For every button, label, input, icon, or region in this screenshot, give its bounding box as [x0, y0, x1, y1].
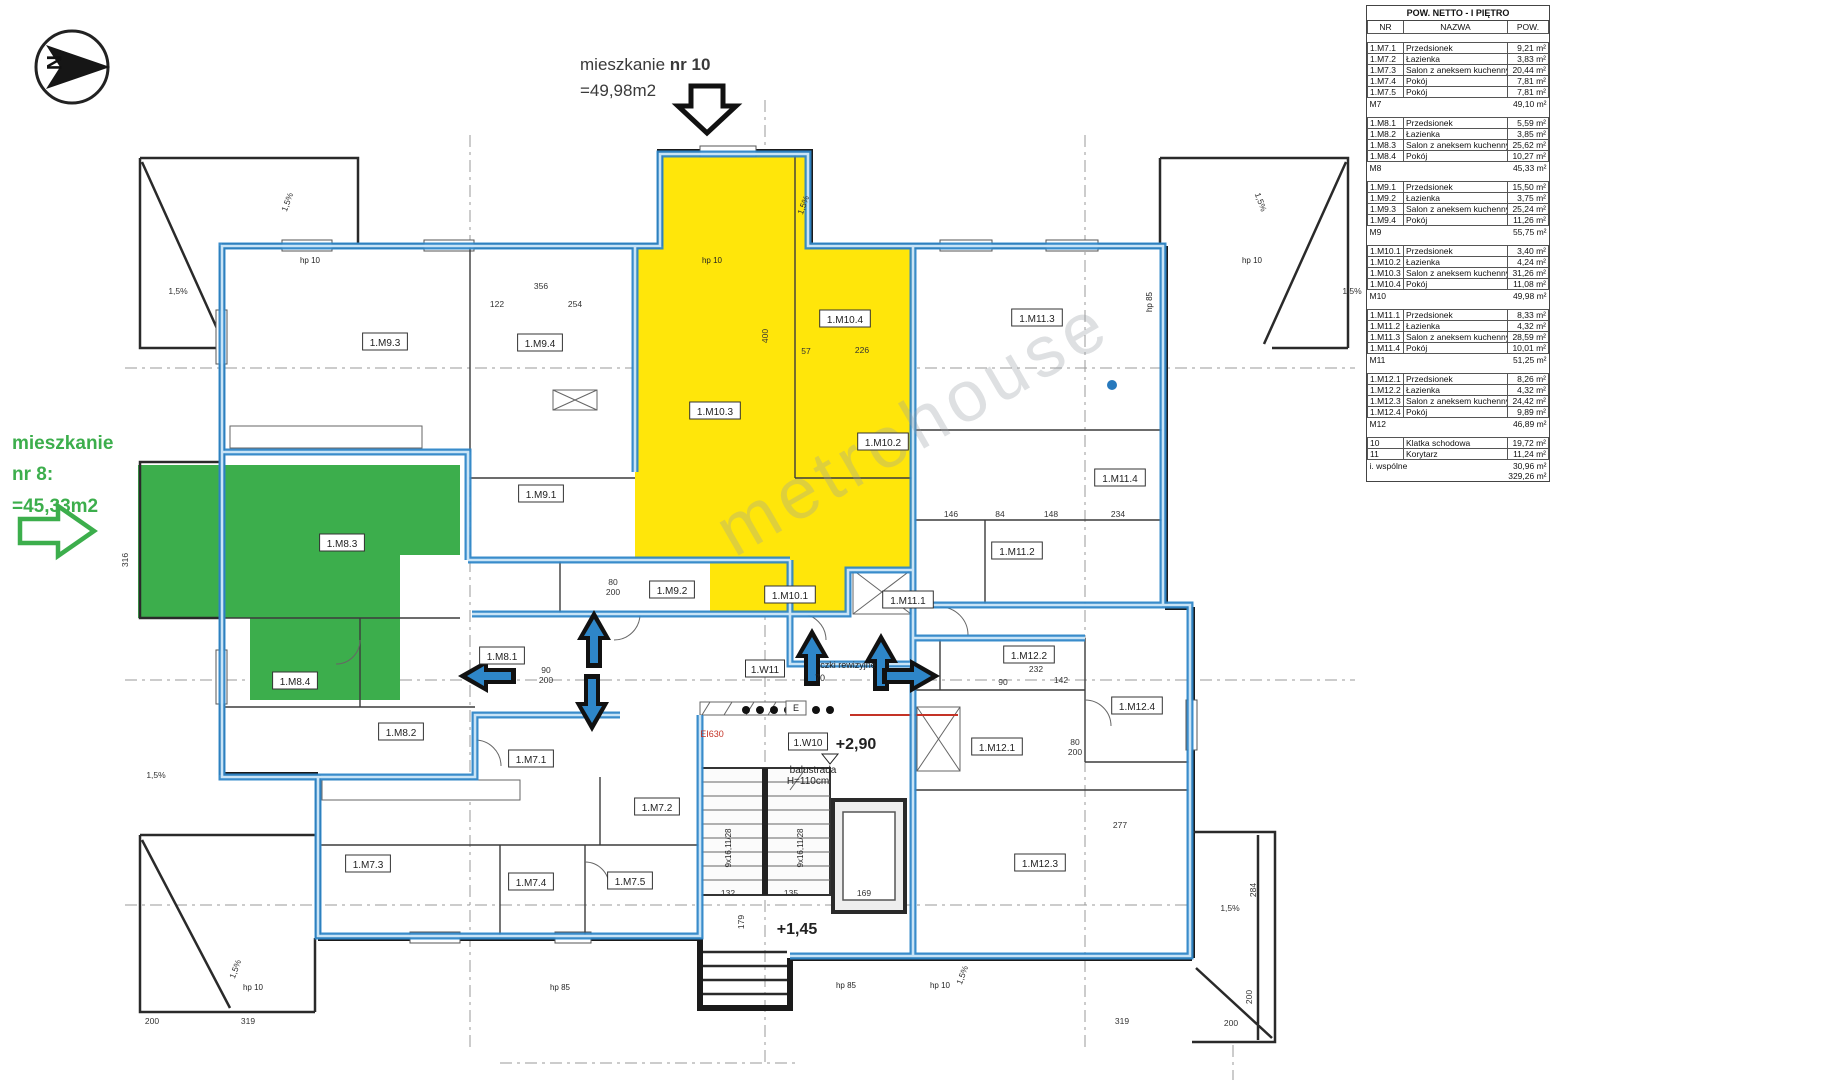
- table-row: 1.M7.5Pokój7,81 m²: [1368, 87, 1549, 98]
- dimension-label: 169: [857, 888, 871, 898]
- apartment-10-name: mieszkanie: [580, 55, 670, 74]
- room-label: 1.M8.3: [320, 534, 365, 551]
- table-row: 1.M10.1Przedsionek3,40 m²: [1368, 246, 1549, 257]
- table-row: M955,75 m²: [1368, 226, 1549, 238]
- table-row: [1368, 237, 1549, 246]
- svg-text:1.M11.3: 1.M11.3: [1019, 314, 1055, 325]
- dimension-label: 400: [760, 329, 770, 343]
- room-label: 1.M7.3: [346, 855, 391, 872]
- room-label: 1.M9.3: [363, 333, 408, 350]
- table-row: 1.M9.4Pokój11,26 m²: [1368, 215, 1549, 226]
- room-label: 1.M10.2: [858, 433, 909, 450]
- room-label: 1.M10.1: [765, 586, 816, 603]
- svg-text:1.M8.4: 1.M8.4: [280, 677, 311, 688]
- dimension-label: 319: [241, 1016, 255, 1026]
- svg-text:N: N: [42, 55, 65, 70]
- plan-note: EI630: [700, 729, 724, 739]
- dimension-label: 135: [784, 888, 798, 898]
- dimension-label: 146: [944, 509, 958, 519]
- area-table: POW. NETTO - I PIĘTRONRNAZWAPOW.1.M7.1Pr…: [1366, 5, 1550, 482]
- dimension-label: 122: [490, 299, 504, 309]
- room-label: 1.M9.4: [518, 334, 563, 351]
- dimension-label: 234: [1111, 509, 1125, 519]
- dimension-label: 1,5%: [954, 964, 970, 986]
- svg-text:1.M11.1: 1.M11.1: [890, 596, 926, 607]
- apartment-10-annotation: mieszkanie nr 10 =49,98m2: [580, 52, 710, 103]
- room-label: 1.M12.4: [1112, 697, 1163, 714]
- room-label: 1.M9.2: [650, 581, 695, 598]
- table-row: 1.M12.1Przedsionek8,26 m²: [1368, 374, 1549, 385]
- plan-note: 70: [815, 673, 825, 683]
- plan-note: H=110cm: [787, 776, 829, 787]
- dimension-label: 254: [568, 299, 582, 309]
- svg-text:1.M10.2: 1.M10.2: [865, 438, 902, 449]
- dimension-label: 90: [998, 677, 1008, 687]
- svg-text:1.M12.3: 1.M12.3: [1022, 859, 1059, 870]
- room-label: 1.W11: [746, 660, 785, 677]
- floor-plan-page: metrohouse N 1.M9.31.M9.41.M9.11.M9.21.M…: [0, 0, 1828, 1080]
- dimension-label: 200: [1244, 990, 1254, 1004]
- room-label: 1.M8.1: [480, 647, 525, 664]
- room-label: 1.M11.1: [883, 591, 934, 608]
- plan-note: hp 10: [930, 981, 951, 990]
- room-label: 1.M7.1: [509, 750, 554, 767]
- table-row: 1.M9.3Salon z aneksem kuchennym25,24 m²: [1368, 204, 1549, 215]
- table-row: M749,10 m²: [1368, 98, 1549, 110]
- staircase: [700, 768, 830, 895]
- room-label: 1.M7.4: [509, 873, 554, 890]
- svg-text:1.M8.1: 1.M8.1: [487, 652, 518, 663]
- svg-text:1.W11: 1.W11: [751, 665, 780, 676]
- apartment-8-annotation: mieszkanie nr 8: =45,33m2: [12, 428, 113, 522]
- svg-text:1.M8.3: 1.M8.3: [327, 539, 358, 550]
- plan-note: czki rewizyjne: [820, 660, 876, 670]
- svg-text:1.M9.4: 1.M9.4: [525, 339, 556, 350]
- svg-text:1.M12.4: 1.M12.4: [1119, 702, 1156, 713]
- svg-text:1.M7.2: 1.M7.2: [642, 803, 673, 814]
- table-row: 1.M12.4Pokój9,89 m²: [1368, 407, 1549, 418]
- plan-note: E: [793, 703, 799, 713]
- table-row: POW. NETTO - I PIĘTRO: [1368, 6, 1549, 21]
- svg-text:1.M10.1: 1.M10.1: [772, 591, 809, 602]
- room-label: 1.M7.5: [608, 872, 653, 889]
- plan-note: hp 85: [836, 981, 857, 990]
- svg-text:1.M7.5: 1.M7.5: [615, 877, 646, 888]
- table-row: 1.M11.1Przedsionek8,33 m²: [1368, 310, 1549, 321]
- table-row: 1.M7.3Salon z aneksem kuchennym20,44 m²: [1368, 65, 1549, 76]
- dimension-label: 1,5%: [146, 770, 166, 780]
- room-label: 1.M11.3: [1012, 309, 1063, 326]
- plan-note: +1,45: [777, 921, 818, 938]
- north-compass-icon: N: [36, 31, 110, 103]
- room-label: 1.M8.4: [273, 672, 318, 689]
- dimension-label: 284: [1248, 883, 1258, 897]
- svg-text:1.M7.4: 1.M7.4: [516, 878, 547, 889]
- table-row: 1.M12.2Łazienka4,32 m²: [1368, 385, 1549, 396]
- apartment-8-number: nr 8:: [12, 459, 113, 490]
- table-row: [1368, 429, 1549, 438]
- svg-text:1.M9.2: 1.M9.2: [657, 586, 688, 597]
- room-label: 1.M10.4: [820, 310, 871, 327]
- apartment-8-highlight: [138, 465, 460, 700]
- table-row: M1049,98 m²: [1368, 290, 1549, 302]
- plan-note: hp 10: [300, 256, 321, 265]
- floor-plan: metrohouse N 1.M9.31.M9.41.M9.11.M9.21.M…: [0, 0, 1828, 1080]
- svg-text:1.M7.1: 1.M7.1: [516, 755, 547, 766]
- room-label: 1.M8.2: [379, 723, 424, 740]
- dimension-label: 232: [1029, 664, 1043, 674]
- plan-note: balustrada: [790, 765, 837, 776]
- dimension-label: 80: [608, 577, 618, 587]
- table-row: 1.M7.4Pokój7,81 m²: [1368, 76, 1549, 87]
- plan-note: hp 10: [243, 983, 264, 992]
- table-row: [1368, 301, 1549, 310]
- plan-note: hp 10: [702, 256, 723, 265]
- dimension-label: 132: [721, 888, 735, 898]
- room-label: 1.M12.2: [1004, 646, 1055, 663]
- dimension-label: 148: [1044, 509, 1058, 519]
- table-row: 10Klatka schodowa19,72 m²: [1368, 438, 1549, 449]
- room-label: 1.M11.2: [992, 542, 1043, 559]
- table-row: M1246,89 m²: [1368, 418, 1549, 430]
- table-row: 1.M9.1Przedsionek15,50 m²: [1368, 182, 1549, 193]
- dimension-label: 1,5%: [1220, 903, 1240, 913]
- blue-dot: [1107, 380, 1117, 390]
- table-row: 1.M12.3Salon z aneksem kuchennym24,42 m²: [1368, 396, 1549, 407]
- table-row: 1.M11.2Łazienka4,32 m²: [1368, 321, 1549, 332]
- room-label: 1.W10: [789, 733, 828, 750]
- plan-note: +2,90: [836, 736, 877, 753]
- table-row: 11Korytarz11,24 m²: [1368, 449, 1549, 460]
- dimension-label: 1,5%: [279, 191, 295, 213]
- room-label: 1.M9.1: [519, 485, 564, 502]
- dimension-label: 1,5%: [227, 958, 243, 980]
- plan-note: hp 85: [550, 983, 571, 992]
- dimension-label: 226: [855, 345, 869, 355]
- dimension-label: 84: [995, 509, 1005, 519]
- svg-text:1.M10.4: 1.M10.4: [827, 315, 864, 326]
- table-row: 1.M8.3Salon z aneksem kuchennym25,62 m²: [1368, 140, 1549, 151]
- table-row: 1.M10.4Pokój11,08 m²: [1368, 279, 1549, 290]
- room-label: 1.M12.1: [972, 738, 1023, 755]
- svg-text:1.W10: 1.W10: [794, 738, 823, 749]
- svg-text:1.M12.2: 1.M12.2: [1011, 651, 1048, 662]
- apartment-8-name: mieszkanie: [12, 428, 113, 459]
- svg-text:1.M9.3: 1.M9.3: [370, 338, 401, 349]
- table-row: [1368, 109, 1549, 118]
- dimension-label: 142: [1054, 675, 1068, 685]
- table-row: 1.M8.1Przedsionek5,59 m²: [1368, 118, 1549, 129]
- table-row: 1.M10.3Salon z aneksem kuchennym31,26 m²: [1368, 268, 1549, 279]
- dimension-label: 1,5%: [1253, 191, 1269, 213]
- grate: [700, 702, 834, 715]
- plan-note: 9x16,11/28: [724, 828, 733, 868]
- svg-text:1.M7.3: 1.M7.3: [353, 860, 384, 871]
- table-row: 1.M11.4Pokój10,01 m²: [1368, 343, 1549, 354]
- svg-text:1.M11.4: 1.M11.4: [1102, 474, 1138, 485]
- room-label: 1.M12.3: [1015, 854, 1066, 871]
- table-row: 1.M7.1Przedsionek9,21 m²: [1368, 43, 1549, 54]
- dimension-label: 319: [1115, 1016, 1129, 1026]
- table-row: [1368, 365, 1549, 374]
- room-label: 1.M11.4: [1095, 469, 1146, 486]
- svg-text:1.M11.2: 1.M11.2: [999, 547, 1035, 558]
- svg-text:1.M10.3: 1.M10.3: [697, 407, 734, 418]
- dimension-label: 179: [736, 915, 746, 929]
- table-row: NRNAZWAPOW.: [1368, 21, 1549, 34]
- table-row: 1.M7.2Łazienka3,83 m²: [1368, 54, 1549, 65]
- room-label: 1.M7.2: [635, 798, 680, 815]
- plan-note: hp 10: [1242, 256, 1263, 265]
- table-row: i. wspólne30,96 m²: [1368, 460, 1549, 472]
- dimension-label: 90: [541, 665, 551, 675]
- plan-note: 9x16,11/28: [796, 828, 805, 868]
- table-row: M845,33 m²: [1368, 162, 1549, 174]
- table-row: 329,26 m²: [1368, 471, 1549, 481]
- room-label: 1.M10.3: [690, 402, 741, 419]
- svg-text:1.M8.2: 1.M8.2: [386, 728, 417, 739]
- dimension-label: 200: [606, 587, 620, 597]
- apartment-8-area: =45,33m2: [12, 491, 113, 522]
- dimension-label: 200: [539, 675, 553, 685]
- table-row: [1368, 34, 1549, 43]
- arrow-down-icon: [575, 674, 609, 732]
- dimension-label: 356: [534, 281, 548, 291]
- table-row: 1.M8.4Pokój10,27 m²: [1368, 151, 1549, 162]
- apartment-10-area: =49,98m2: [580, 78, 710, 104]
- table-row: M1151,25 m²: [1368, 354, 1549, 366]
- dimension-label: 200: [1068, 747, 1082, 757]
- dimension-label: 316: [120, 553, 130, 567]
- dimension-label: 57: [801, 346, 811, 356]
- apartment-10-number: nr 10: [670, 55, 711, 74]
- table-row: [1368, 173, 1549, 182]
- dimension-label: 1,5%: [1342, 286, 1362, 296]
- dimension-label: 80: [1070, 737, 1080, 747]
- table-row: 1.M10.2Łazienka4,24 m²: [1368, 257, 1549, 268]
- dimension-label: 200: [1224, 1018, 1238, 1028]
- svg-text:1.M9.1: 1.M9.1: [526, 490, 557, 501]
- svg-text:1.M12.1: 1.M12.1: [979, 743, 1016, 754]
- dimension-label: 277: [1113, 820, 1127, 830]
- plan-note: hp 85: [1145, 291, 1154, 312]
- dimension-label: 1,5%: [168, 286, 188, 296]
- arrow-up-icon: [577, 610, 611, 668]
- table-row: 1.M8.2Łazienka3,85 m²: [1368, 129, 1549, 140]
- dimension-label: 200: [145, 1016, 159, 1026]
- table-row: 1.M9.2Łazienka3,75 m²: [1368, 193, 1549, 204]
- table-row: 1.M11.3Salon z aneksem kuchennym28,59 m²: [1368, 332, 1549, 343]
